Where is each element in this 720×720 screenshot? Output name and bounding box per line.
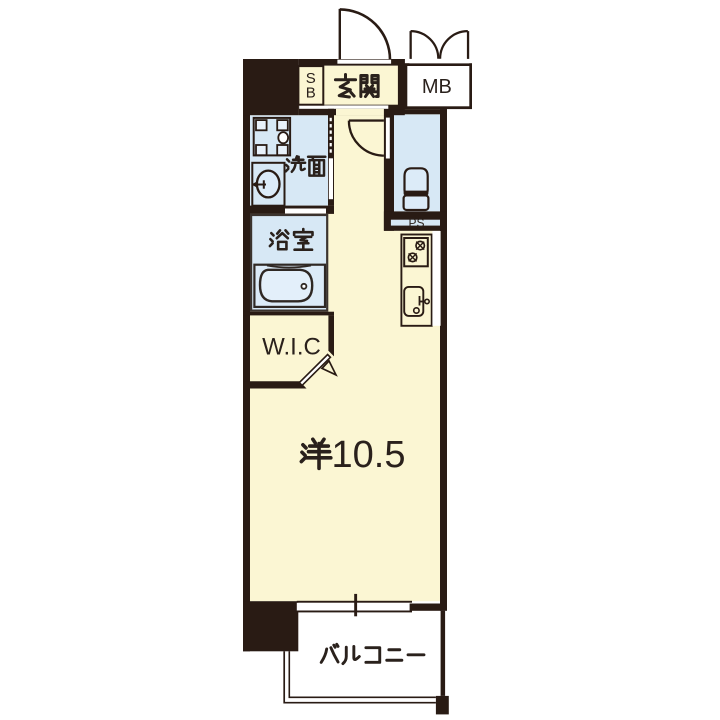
svg-text:MB: MB (422, 76, 452, 98)
svg-text:PS: PS (408, 216, 424, 230)
svg-text:10.5: 10.5 (332, 434, 406, 476)
svg-text:B: B (306, 85, 316, 102)
svg-text:W.I.C: W.I.C (262, 334, 321, 361)
